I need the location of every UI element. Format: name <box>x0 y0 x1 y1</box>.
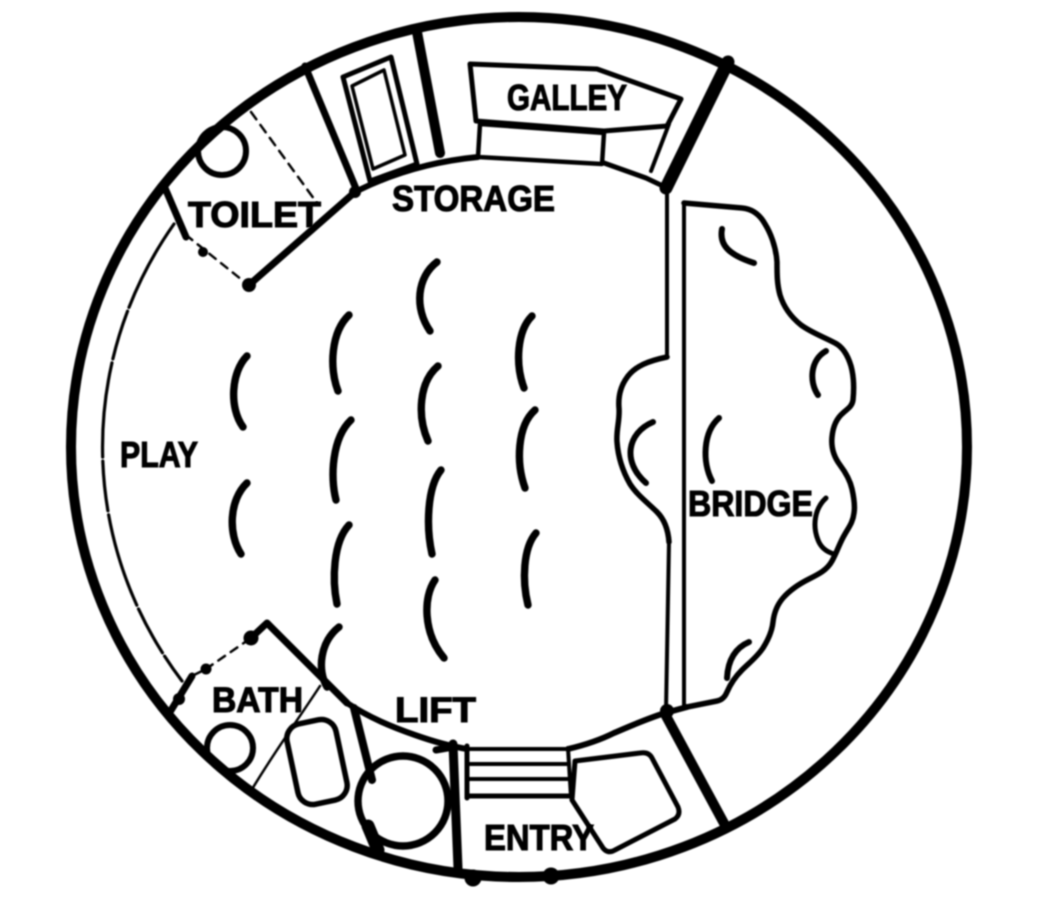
svg-text:GALLEY: GALLEY <box>507 77 627 118</box>
svg-text:BATH: BATH <box>212 681 303 720</box>
svg-text:TOILET: TOILET <box>188 194 321 235</box>
svg-text:ENTRY: ENTRY <box>484 817 594 858</box>
svg-text:STORAGE: STORAGE <box>392 178 555 219</box>
svg-text:BRIDGE: BRIDGE <box>688 483 813 524</box>
svg-text:PLAY: PLAY <box>120 434 198 475</box>
svg-text:LIFT: LIFT <box>395 691 476 730</box>
